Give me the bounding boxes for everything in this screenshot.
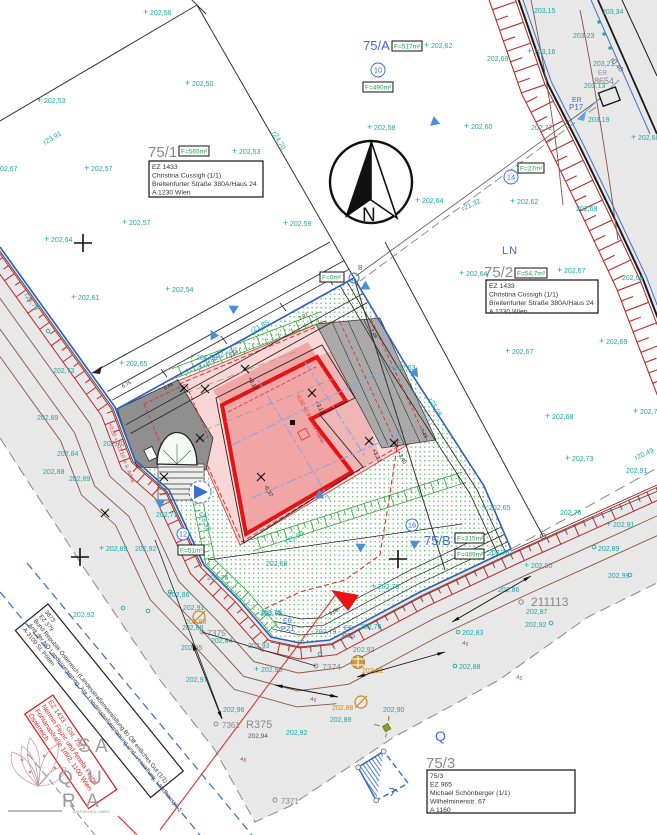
svg-text:202,83: 202,83 xyxy=(261,667,283,674)
svg-text:7374: 7374 xyxy=(322,662,341,672)
svg-text:+: + xyxy=(165,284,170,294)
svg-text:202,90: 202,90 xyxy=(383,707,405,714)
svg-text:14: 14 xyxy=(507,173,515,182)
svg-text:Q: Q xyxy=(58,768,73,789)
svg-text:B: B xyxy=(358,265,363,272)
svg-text:202,96: 202,96 xyxy=(223,707,245,714)
svg-text:202,57: 202,57 xyxy=(91,166,113,173)
svg-text:Breitenfurter Straße 380A/Haus: Breitenfurter Straße 380A/Haus 24 xyxy=(489,300,594,307)
svg-text:+: + xyxy=(459,268,464,278)
svg-text:202,70: 202,70 xyxy=(378,584,400,591)
svg-text:203,16: 203,16 xyxy=(534,49,556,56)
svg-text:+: + xyxy=(631,132,636,142)
svg-text:202,73: 202,73 xyxy=(572,456,594,463)
svg-text:202,84: 202,84 xyxy=(57,451,79,458)
svg-text:202,88: 202,88 xyxy=(43,469,65,476)
svg-text:12: 12 xyxy=(179,530,187,539)
svg-text:202,67: 202,67 xyxy=(512,349,534,356)
svg-text:202,97: 202,97 xyxy=(186,677,208,684)
svg-text:+: + xyxy=(387,362,392,372)
svg-text:+: + xyxy=(482,502,487,512)
svg-text:75/2: 75/2 xyxy=(484,264,513,281)
svg-text:203,19: 203,19 xyxy=(588,117,610,124)
svg-text:202,68: 202,68 xyxy=(638,135,657,142)
svg-text:EZ 1433: EZ 1433 xyxy=(152,164,178,171)
svg-text:Breitenfurter Straße 380A/Haus: Breitenfurter Straße 380A/Haus 24 xyxy=(152,181,257,188)
svg-text:F=51m²: F=51m² xyxy=(180,548,203,555)
svg-text:202,67: 202,67 xyxy=(564,268,586,275)
svg-text:+: + xyxy=(84,163,89,173)
svg-text:202,90: 202,90 xyxy=(531,563,553,570)
svg-text:202,99: 202,99 xyxy=(608,573,630,580)
svg-text:202,92: 202,92 xyxy=(135,546,157,553)
svg-text:202,68: 202,68 xyxy=(576,206,598,213)
svg-text:203,15: 203,15 xyxy=(534,8,556,15)
svg-text:202,58: 202,58 xyxy=(374,125,396,132)
svg-text:202,92: 202,92 xyxy=(73,612,95,619)
svg-text:202,50: 202,50 xyxy=(192,81,214,88)
svg-text:A 1230 Wien: A 1230 Wien xyxy=(489,309,528,316)
svg-text:F=0m²: F=0m² xyxy=(322,275,342,282)
svg-text:+: + xyxy=(565,453,570,463)
svg-text:202,76: 202,76 xyxy=(560,510,582,517)
svg-text:202,88: 202,88 xyxy=(332,705,354,712)
svg-text:F=490m²: F=490m² xyxy=(365,85,392,92)
svg-text:+: + xyxy=(37,95,42,105)
svg-text:202,68: 202,68 xyxy=(552,414,574,421)
svg-text:Christina Cussigh (1/1): Christina Cussigh (1/1) xyxy=(152,172,221,179)
svg-text:75/A: 75/A xyxy=(363,38,390,53)
svg-text:202,65: 202,65 xyxy=(126,361,148,368)
svg-text:202,56: 202,56 xyxy=(150,10,172,17)
svg-text:202,89: 202,89 xyxy=(330,717,352,724)
svg-text:202,57: 202,57 xyxy=(129,220,151,227)
svg-text:203,13: 203,13 xyxy=(584,83,606,90)
svg-text:+: + xyxy=(633,406,638,416)
svg-text:202,89: 202,89 xyxy=(598,546,620,553)
svg-text:F=489m²: F=489m² xyxy=(457,552,484,559)
svg-text:+: + xyxy=(505,346,510,356)
svg-text:16: 16 xyxy=(408,521,416,530)
svg-text:202,69: 202,69 xyxy=(606,339,628,346)
svg-text:202,60: 202,60 xyxy=(471,124,493,131)
svg-text:F=54,7m²: F=54,7m² xyxy=(517,271,546,278)
svg-text:P15: P15 xyxy=(342,631,355,640)
svg-text:202,72: 202,72 xyxy=(531,125,553,132)
svg-text:75/B: 75/B xyxy=(424,533,451,548)
svg-text:203,34: 203,34 xyxy=(602,9,624,16)
svg-text:S: S xyxy=(78,736,91,757)
svg-text:202,7: 202,7 xyxy=(640,409,657,416)
svg-text:202,64: 202,64 xyxy=(422,198,444,205)
svg-text:202,71: 202,71 xyxy=(156,512,178,519)
svg-text:+: + xyxy=(44,234,49,244)
svg-text:75/1: 75/1 xyxy=(148,144,177,161)
svg-text:+: + xyxy=(415,195,420,205)
svg-text:202,62: 202,62 xyxy=(431,43,453,50)
svg-text:P21: P21 xyxy=(281,624,294,633)
svg-text:202,65: 202,65 xyxy=(489,505,511,512)
svg-text:+: + xyxy=(464,121,469,131)
svg-text:202,64: 202,64 xyxy=(466,271,488,278)
svg-text:+: + xyxy=(367,122,372,132)
svg-text:F=27m²: F=27m² xyxy=(520,166,543,173)
svg-text:7361: 7361 xyxy=(222,721,240,730)
svg-text:202,53: 202,53 xyxy=(239,149,261,156)
svg-text:202,82: 202,82 xyxy=(362,668,384,675)
svg-text:+: + xyxy=(232,146,237,156)
svg-text:202,92: 202,92 xyxy=(525,622,547,629)
svg-text:F=565m²: F=565m² xyxy=(181,149,208,156)
svg-text:+: + xyxy=(119,358,124,368)
svg-text:+: + xyxy=(545,411,550,421)
svg-text:+: + xyxy=(527,46,532,56)
svg-text:75/3: 75/3 xyxy=(426,755,455,772)
svg-text:202,91: 202,91 xyxy=(613,522,635,529)
svg-text:A 1160: A 1160 xyxy=(430,807,451,814)
svg-text:202,92: 202,92 xyxy=(286,730,308,737)
svg-text:+: + xyxy=(143,7,148,17)
svg-text:+: + xyxy=(283,218,288,228)
svg-text:F=315m²: F=315m² xyxy=(457,536,484,543)
svg-text:02,67: 02,67 xyxy=(0,166,18,173)
svg-text:EZ 965: EZ 965 xyxy=(430,781,452,788)
svg-text:202,83: 202,83 xyxy=(462,630,484,637)
svg-text:+: + xyxy=(557,265,562,275)
svg-text:+: + xyxy=(254,664,259,674)
svg-text:202,54: 202,54 xyxy=(172,287,194,294)
svg-text:202,87: 202,87 xyxy=(526,609,548,616)
svg-text:A: A xyxy=(95,736,108,757)
svg-text:IMMOBILIEN GMBH: IMMOBILIEN GMBH xyxy=(73,809,110,814)
svg-text:202,68: 202,68 xyxy=(266,561,288,568)
svg-text:+: + xyxy=(371,581,376,591)
svg-text:202,73: 202,73 xyxy=(53,368,75,375)
svg-text:202,89: 202,89 xyxy=(69,476,91,483)
svg-text:F=517m²: F=517m² xyxy=(394,44,421,51)
svg-text:202,76: 202,76 xyxy=(207,575,229,582)
svg-text:202,88: 202,88 xyxy=(459,664,481,671)
svg-text:202,95: 202,95 xyxy=(181,645,203,652)
svg-text:203,23: 203,23 xyxy=(573,33,595,40)
svg-text:+: + xyxy=(185,78,190,88)
svg-text:202,79: 202,79 xyxy=(315,629,337,636)
svg-text:202,76: 202,76 xyxy=(360,624,382,631)
svg-text:+: + xyxy=(99,543,104,553)
svg-text:202,68: 202,68 xyxy=(622,275,644,282)
svg-text:202,69: 202,69 xyxy=(487,56,509,63)
svg-text:A 1230 Wien: A 1230 Wien xyxy=(152,190,191,197)
svg-text:+: + xyxy=(424,40,429,50)
svg-text:202,94: 202,94 xyxy=(248,733,268,740)
svg-text:Wilhelminenstr. 67: Wilhelminenstr. 67 xyxy=(430,799,486,806)
svg-text:LN: LN xyxy=(502,245,518,257)
svg-text:202,89: 202,89 xyxy=(106,546,128,553)
svg-text:+: + xyxy=(189,352,194,362)
svg-text:202,64: 202,64 xyxy=(51,237,73,244)
svg-text:202,59: 202,59 xyxy=(290,221,312,228)
svg-text:Q: Q xyxy=(435,728,446,744)
svg-text:EZ 1433: EZ 1433 xyxy=(489,283,515,290)
svg-text:202,62: 202,62 xyxy=(517,199,539,206)
svg-text:202,75: 202,75 xyxy=(260,610,282,617)
svg-text:75/3: 75/3 xyxy=(430,773,443,780)
svg-text:202,76: 202,76 xyxy=(488,550,510,557)
svg-text:211113: 211113 xyxy=(531,595,569,609)
svg-text:+: + xyxy=(599,336,604,346)
svg-text:+: + xyxy=(606,519,611,529)
svg-text:202,88: 202,88 xyxy=(182,625,204,632)
svg-text:10: 10 xyxy=(374,66,382,75)
svg-text:Christina Cussigh (1/1): Christina Cussigh (1/1) xyxy=(489,291,558,298)
svg-text:+: + xyxy=(524,560,529,570)
svg-text:202,53: 202,53 xyxy=(44,98,66,105)
svg-text:7371: 7371 xyxy=(281,797,299,806)
svg-text:202,84: 202,84 xyxy=(211,638,233,645)
svg-text:+: + xyxy=(122,217,127,227)
svg-text:P17: P17 xyxy=(569,103,584,112)
svg-text:+: + xyxy=(71,292,76,302)
svg-text:+: + xyxy=(510,196,515,206)
svg-text:202,92: 202,92 xyxy=(353,647,375,654)
svg-text:R375: R375 xyxy=(246,719,272,731)
svg-text:202,91: 202,91 xyxy=(626,468,648,475)
svg-text:N: N xyxy=(362,205,376,226)
svg-text:202,89: 202,89 xyxy=(37,415,59,422)
svg-text:U: U xyxy=(88,768,102,789)
svg-text:202,61: 202,61 xyxy=(78,295,100,302)
svg-text:Michael Schönberger (1/1): Michael Schönberger (1/1) xyxy=(430,790,510,797)
